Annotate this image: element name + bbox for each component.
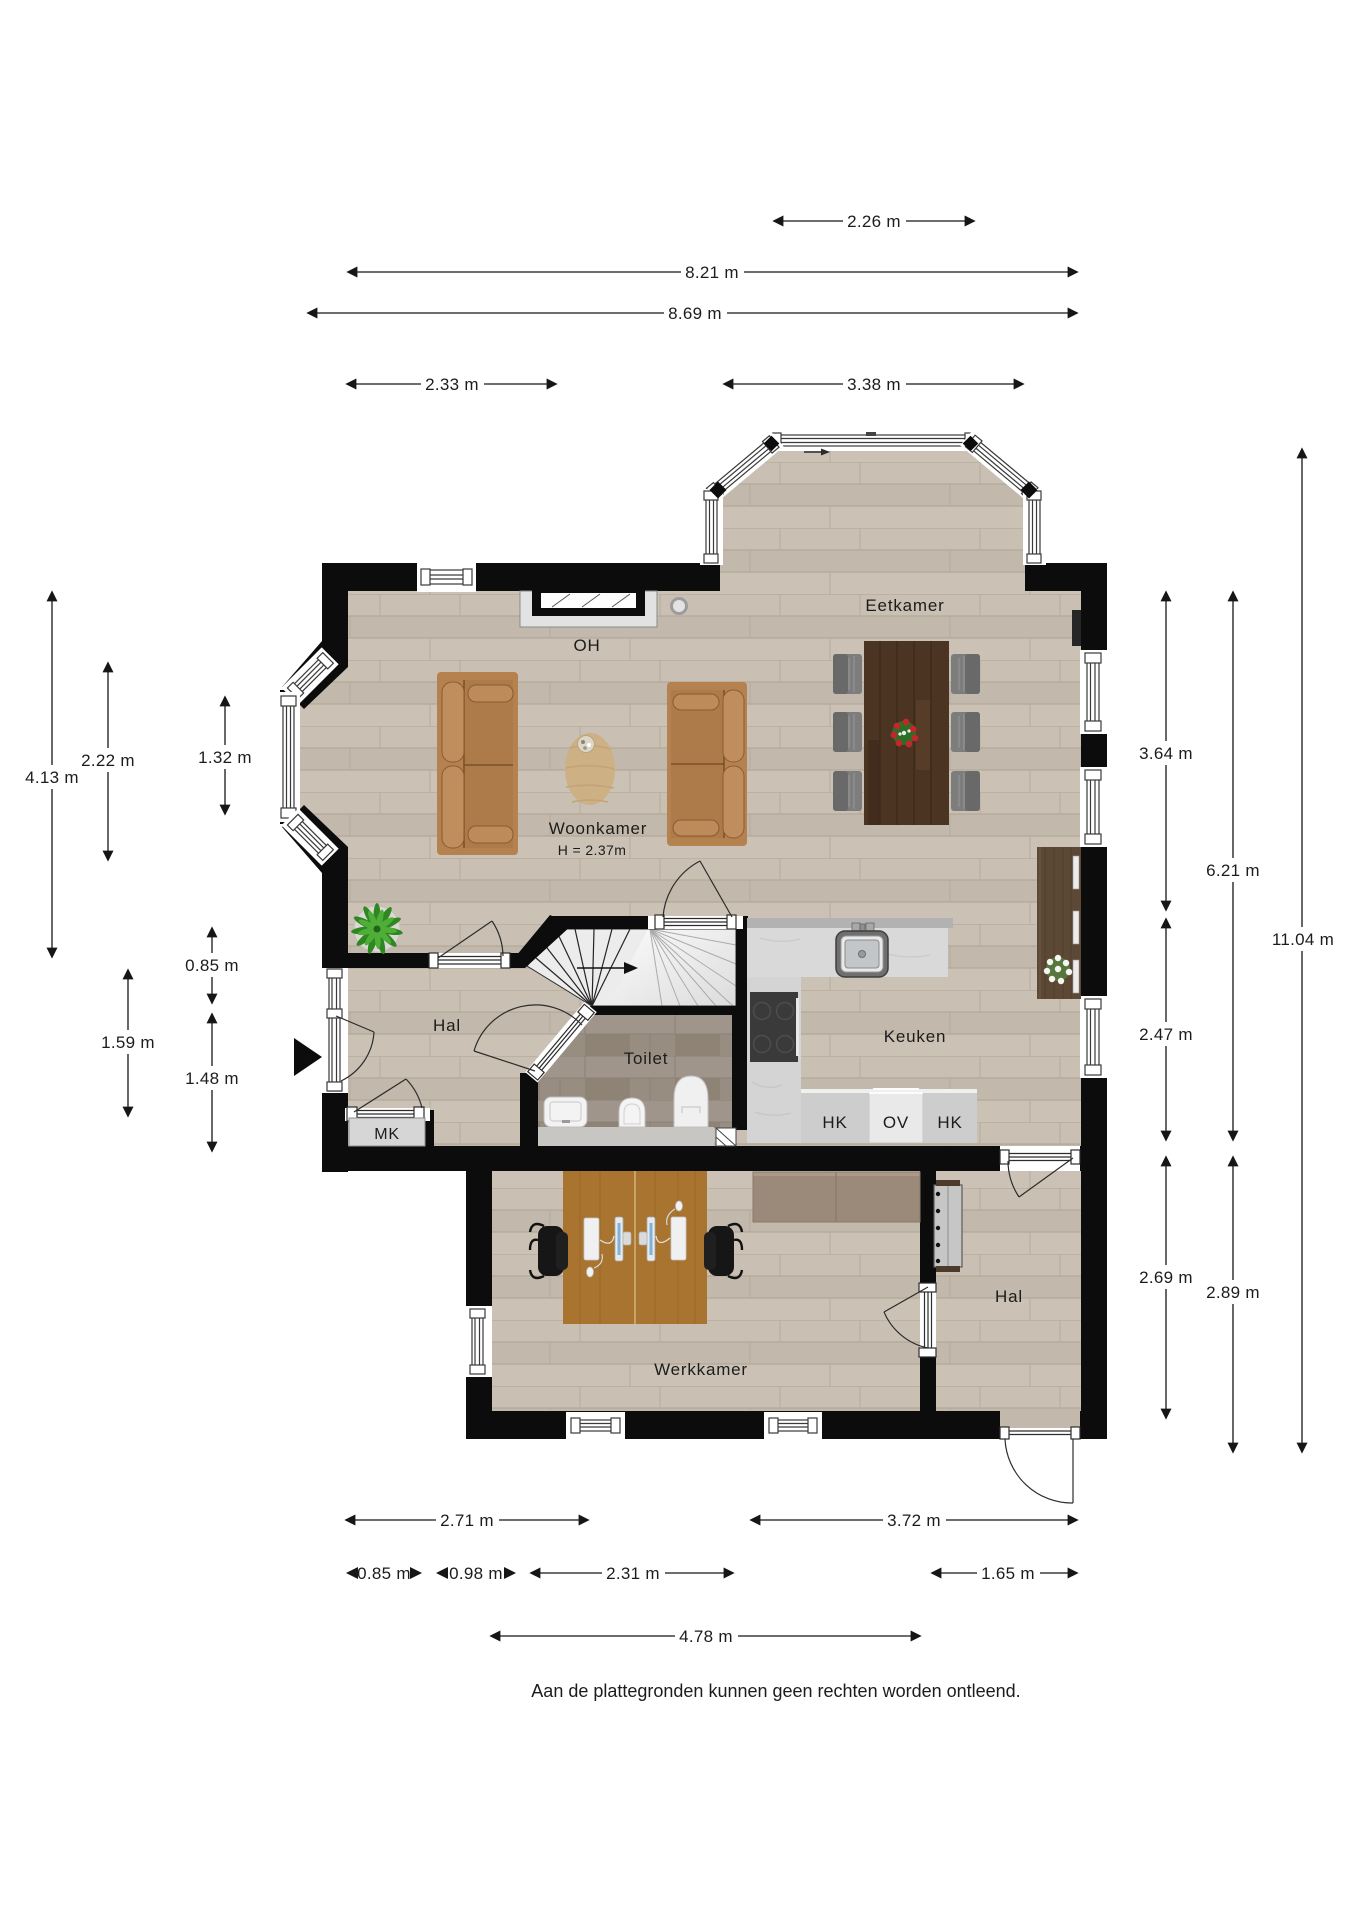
svg-text:H = 2.37m: H = 2.37m [558,842,627,858]
svg-text:HK: HK [937,1113,962,1132]
svg-text:2.22 m: 2.22 m [81,751,135,770]
svg-text:HK: HK [822,1113,847,1132]
svg-text:1.59 m: 1.59 m [101,1033,155,1052]
svg-text:0.98 m: 0.98 m [449,1564,503,1583]
svg-text:3.72 m: 3.72 m [887,1511,941,1530]
svg-text:1.48 m: 1.48 m [185,1069,239,1088]
svg-text:2.26 m: 2.26 m [847,212,901,231]
svg-text:2.69 m: 2.69 m [1139,1268,1193,1287]
svg-text:3.64 m: 3.64 m [1139,744,1193,763]
svg-text:0.85 m: 0.85 m [357,1564,411,1583]
svg-text:1.32 m: 1.32 m [198,748,252,767]
svg-text:2.33 m: 2.33 m [425,375,479,394]
svg-text:OV: OV [883,1113,909,1132]
svg-text:MK: MK [374,1126,400,1143]
svg-text:Werkkamer: Werkkamer [654,1360,748,1379]
svg-text:2.89 m: 2.89 m [1206,1283,1260,1302]
svg-text:6.21 m: 6.21 m [1206,861,1260,880]
svg-text:3.38 m: 3.38 m [847,375,901,394]
svg-text:Toilet: Toilet [624,1049,669,1068]
svg-text:Hal: Hal [995,1287,1023,1306]
svg-text:8.21 m: 8.21 m [685,263,739,282]
svg-text:Aan de plattegronden kunnen ge: Aan de plattegronden kunnen geen rechten… [531,1681,1020,1701]
svg-text:Eetkamer: Eetkamer [865,596,944,615]
svg-text:8.69 m: 8.69 m [668,304,722,323]
svg-text:1.65 m: 1.65 m [981,1564,1035,1583]
svg-text:0.85 m: 0.85 m [185,956,239,975]
svg-text:2.47 m: 2.47 m [1139,1025,1193,1044]
svg-text:Keuken: Keuken [884,1027,946,1046]
svg-text:Hal: Hal [433,1016,461,1035]
svg-text:4.78 m: 4.78 m [679,1627,733,1646]
svg-text:2.31 m: 2.31 m [606,1564,660,1583]
svg-text:2.71 m: 2.71 m [440,1511,494,1530]
svg-text:4.13 m: 4.13 m [25,768,79,787]
svg-text:11.04 m: 11.04 m [1272,930,1334,949]
svg-text:OH: OH [573,636,600,655]
svg-text:Woonkamer: Woonkamer [549,819,648,838]
